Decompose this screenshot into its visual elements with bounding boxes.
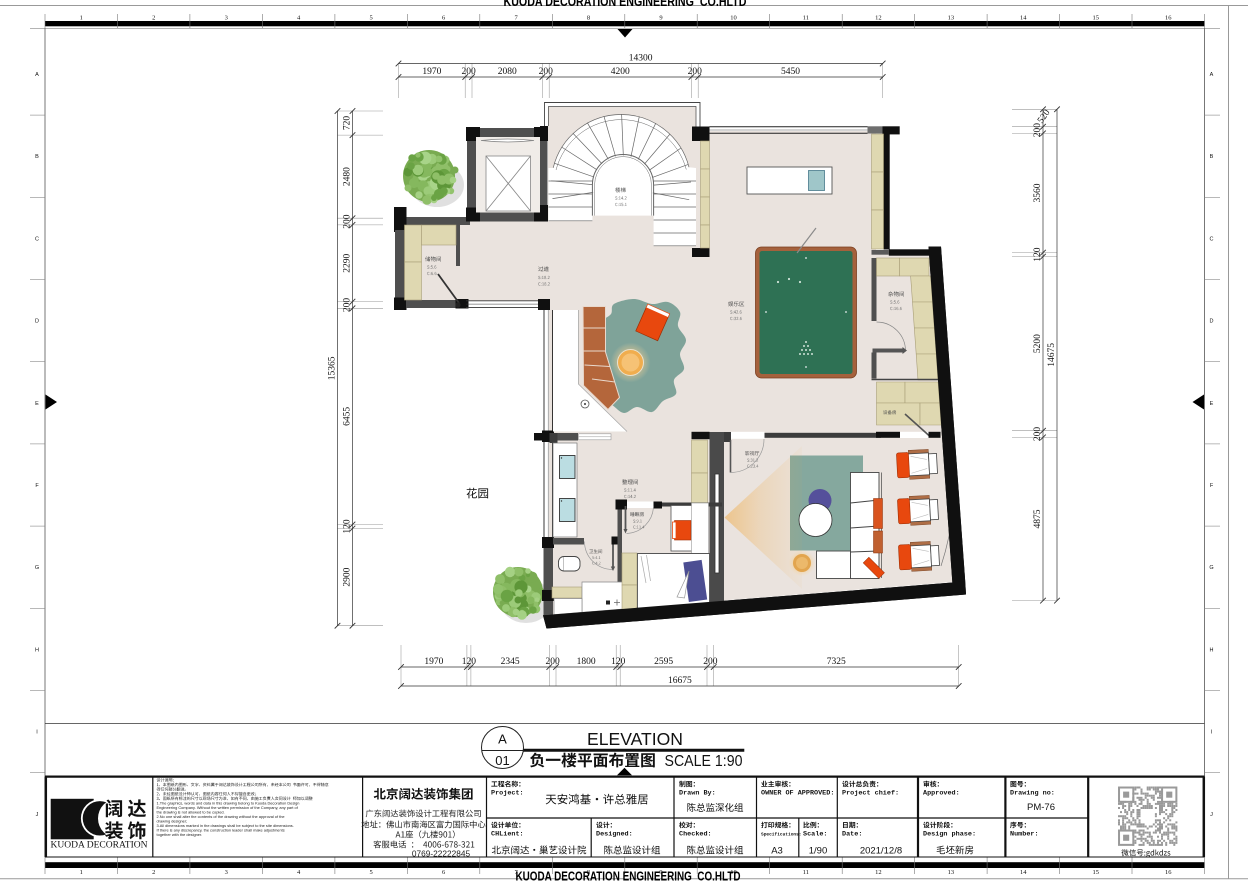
svg-text:10: 10 [730, 15, 737, 22]
svg-text:3: 3 [225, 869, 228, 876]
svg-text:15: 15 [1093, 869, 1100, 876]
svg-text:8: 8 [587, 15, 590, 22]
svg-text:Date:: Date: [842, 831, 862, 839]
svg-text:6455: 6455 [343, 407, 353, 426]
svg-text:1: 1 [80, 869, 83, 876]
svg-text:2290: 2290 [343, 253, 353, 272]
svg-text:2: 2 [152, 15, 155, 22]
svg-text:2345: 2345 [501, 657, 520, 667]
svg-text:PM-76: PM-76 [1027, 802, 1055, 813]
svg-text:Number:: Number: [1010, 831, 1039, 839]
svg-text:OWNER OF APPROVED:: OWNER OF APPROVED: [761, 790, 834, 798]
svg-text:H: H [1210, 647, 1214, 653]
svg-text:01: 01 [495, 753, 509, 768]
svg-text:Drawn By:: Drawn By: [679, 790, 716, 798]
svg-text:Design phase:: Design phase: [923, 831, 976, 839]
svg-text:12: 12 [875, 869, 882, 876]
svg-text:5: 5 [369, 869, 372, 876]
svg-text:14: 14 [1020, 869, 1027, 876]
svg-text:13: 13 [948, 15, 955, 22]
svg-text:3560: 3560 [1033, 183, 1043, 202]
svg-text:15: 15 [1093, 15, 1100, 22]
svg-text:A: A [498, 732, 507, 747]
svg-text:ELEVATION: ELEVATION [587, 729, 683, 749]
svg-text:J: J [1210, 812, 1213, 818]
svg-text:Scale:: Scale: [803, 831, 827, 839]
svg-text:1970: 1970 [422, 67, 441, 77]
svg-text:200: 200 [1033, 427, 1043, 442]
svg-text:1800: 1800 [577, 657, 596, 667]
svg-text:14675: 14675 [1047, 343, 1057, 367]
svg-text:B: B [35, 154, 39, 160]
svg-text:200: 200 [1033, 123, 1043, 138]
svg-text:4200: 4200 [611, 67, 630, 77]
svg-text:KUODA DECORATION ENGINEERING: KUODA DECORATION ENGINEERING CO.HLTD [504, 0, 747, 9]
svg-text:C: C [1210, 236, 1214, 242]
svg-text:Specifications:: Specifications: [761, 832, 802, 838]
svg-text:Designed:: Designed: [596, 831, 633, 839]
svg-text:A: A [35, 72, 39, 78]
svg-text:Approved:: Approved: [923, 790, 960, 798]
svg-text:200: 200 [539, 67, 554, 77]
svg-text:11: 11 [803, 869, 809, 876]
svg-text:D: D [1210, 319, 1214, 325]
svg-text:14: 14 [1020, 15, 1027, 22]
svg-text:16: 16 [1165, 15, 1172, 22]
svg-text:C: C [35, 236, 39, 242]
svg-text:KUODA DECORATION: KUODA DECORATION [51, 840, 148, 850]
svg-text:E: E [1210, 401, 1214, 407]
svg-text:200: 200 [343, 298, 353, 313]
svg-text:SCALE 1:90: SCALE 1:90 [665, 753, 743, 770]
svg-text:2080: 2080 [498, 67, 517, 77]
svg-text:KUODA DECORATION ENGINEERING: KUODA DECORATION ENGINEERING CO.HLTD [516, 869, 741, 884]
svg-text:120: 120 [462, 657, 477, 667]
svg-text:together with the designer.: together with the designer. [157, 832, 203, 837]
svg-text:5200: 5200 [1033, 334, 1043, 353]
svg-text:13: 13 [948, 869, 955, 876]
svg-text:H: H [35, 647, 39, 653]
svg-text:B: B [1210, 154, 1214, 160]
svg-text:Project chief:: Project chief: [842, 790, 899, 798]
svg-text:200: 200 [703, 657, 718, 667]
svg-text:7325: 7325 [827, 657, 846, 667]
svg-text:E: E [35, 401, 39, 407]
svg-text:3: 3 [225, 15, 228, 22]
svg-text:2480: 2480 [343, 167, 353, 186]
svg-text:9: 9 [659, 15, 662, 22]
svg-text:200: 200 [688, 67, 703, 77]
svg-text:200: 200 [545, 657, 560, 667]
svg-text:1970: 1970 [424, 657, 443, 667]
svg-text:5: 5 [369, 15, 372, 22]
svg-text:120: 120 [1033, 247, 1043, 262]
svg-text:1/90: 1/90 [809, 846, 828, 857]
svg-text:16: 16 [1165, 869, 1172, 876]
svg-text:0769-22222845: 0769-22222845 [412, 849, 471, 859]
svg-text:2595: 2595 [654, 657, 673, 667]
svg-text:4875: 4875 [1033, 509, 1043, 528]
svg-text:15365: 15365 [328, 356, 338, 380]
svg-text:D: D [35, 319, 39, 325]
svg-text:2021/12/8: 2021/12/8 [860, 846, 902, 857]
svg-text:12: 12 [875, 15, 882, 22]
svg-text:CHLient:: CHLient: [491, 831, 524, 839]
svg-text:120: 120 [343, 519, 353, 534]
svg-text:Drawing no:: Drawing no: [1010, 790, 1055, 798]
svg-text:G: G [35, 565, 39, 571]
svg-text:A3: A3 [771, 846, 783, 857]
svg-text:14300: 14300 [629, 54, 653, 64]
svg-text:A: A [1210, 72, 1214, 78]
svg-text:2: 2 [152, 869, 155, 876]
svg-text:16675: 16675 [668, 676, 692, 686]
svg-text:720: 720 [343, 116, 353, 131]
svg-text:Checked:: Checked: [679, 831, 712, 839]
svg-text:Project:: Project: [491, 790, 524, 798]
svg-text:11: 11 [803, 15, 809, 22]
svg-text:200: 200 [461, 67, 476, 77]
svg-text:5450: 5450 [781, 67, 800, 77]
svg-text:200: 200 [343, 214, 353, 229]
svg-text:120: 120 [611, 657, 626, 667]
svg-text:G: G [1209, 565, 1213, 571]
svg-text:1: 1 [80, 15, 83, 22]
svg-text:2900: 2900 [343, 567, 353, 586]
svg-text:J: J [36, 812, 39, 818]
